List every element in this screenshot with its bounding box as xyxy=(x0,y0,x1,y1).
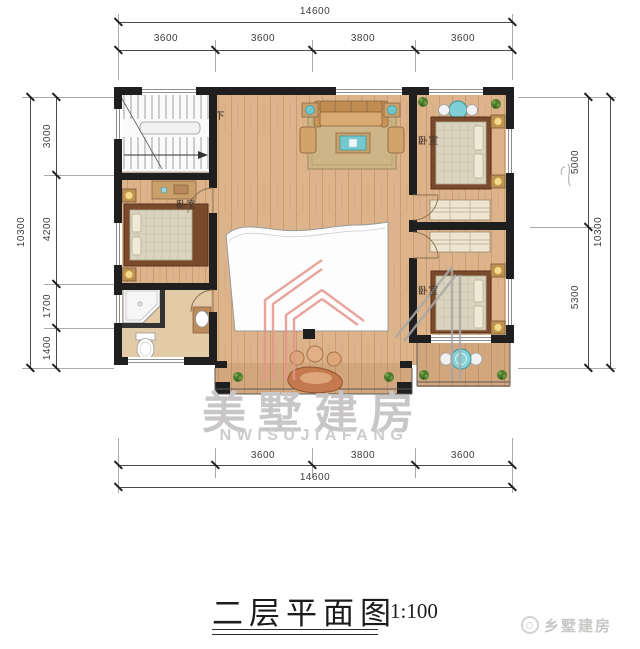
dimension-line-bottom-total xyxy=(118,487,512,488)
page-title: 二层平面图 xyxy=(212,588,397,633)
dim-right-seg: 5300 xyxy=(570,274,582,320)
dim-bottom-seg: 3600 xyxy=(233,450,293,462)
extension-line xyxy=(44,175,114,176)
lamp xyxy=(494,267,502,275)
armchair xyxy=(388,127,404,153)
dim-top-seg: 3800 xyxy=(333,33,393,45)
extension-line xyxy=(44,328,114,329)
room-label-bedroom-bottom-right: 卧室 xyxy=(418,283,439,297)
dim-left-seg: 4200 xyxy=(42,206,54,252)
extension-line xyxy=(518,97,616,98)
dim-top-seg: 3600 xyxy=(233,33,293,45)
dimension-line-right-total xyxy=(610,97,611,368)
chair xyxy=(439,105,450,116)
lamp xyxy=(125,271,133,279)
round-table xyxy=(449,101,467,119)
dim-bottom-seg: 3800 xyxy=(333,450,393,462)
extension-line xyxy=(415,40,416,72)
extension-line xyxy=(518,368,616,369)
drawing-scale: 1:100 xyxy=(390,599,438,624)
watermark-logo xyxy=(200,255,470,385)
extension-line xyxy=(22,97,114,98)
floor-plan-page: 14600 3600 3600 3800 3600 3600 3800 3600… xyxy=(0,0,640,649)
dim-top-total: 14600 xyxy=(285,6,345,18)
lamp xyxy=(125,192,133,200)
extension-line xyxy=(22,368,114,369)
chair xyxy=(467,105,478,116)
brand-name: 乡墅建房 xyxy=(544,615,612,636)
extension-line xyxy=(44,284,114,285)
dimension-line-top-total xyxy=(118,22,512,23)
dim-top-seg: 3600 xyxy=(136,33,196,45)
lamp xyxy=(494,324,502,332)
chair xyxy=(470,353,482,365)
dim-left-seg: 1700 xyxy=(42,283,54,329)
dim-left-total: 10300 xyxy=(16,209,28,255)
room-label-bedroom-top-right: 卧室 xyxy=(418,133,439,147)
dim-right-total: 10300 xyxy=(593,209,605,255)
lamp xyxy=(494,178,502,186)
dim-left-seg: 1400 xyxy=(42,325,54,371)
dim-left-seg: 3000 xyxy=(42,113,54,159)
extension-line xyxy=(312,40,313,72)
armchair xyxy=(300,127,316,153)
dimension-line-right-segments xyxy=(588,97,589,368)
dim-bottom-total: 14600 xyxy=(285,472,345,484)
lamp xyxy=(494,118,502,126)
handwritten-mark xyxy=(556,160,580,190)
extension-line xyxy=(530,227,594,228)
brand-logo-icon xyxy=(521,616,539,634)
stairs-down-label: 下 xyxy=(215,108,225,122)
extension-line xyxy=(215,40,216,72)
room-label-bedroom-left: 卧室 xyxy=(176,197,197,211)
dimension-line-left-total xyxy=(30,97,31,368)
dim-bottom-seg: 3600 xyxy=(433,450,493,462)
watermark-text-en: NWISUJIAFANG xyxy=(196,427,432,445)
sofa-set xyxy=(300,101,404,169)
dim-top-seg: 3600 xyxy=(433,33,493,45)
title-underline xyxy=(212,629,378,635)
